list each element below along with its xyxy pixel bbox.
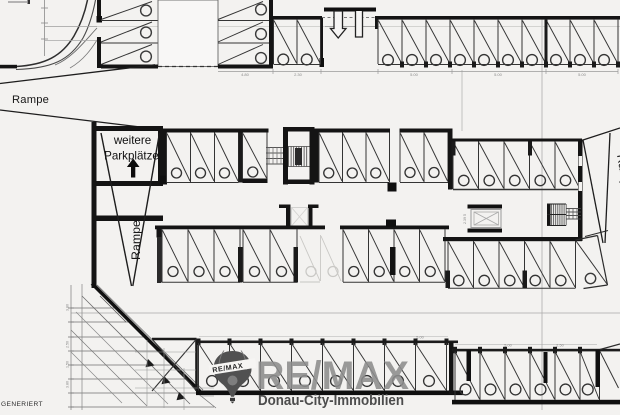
svg-text:2.30: 2.30 <box>294 72 303 77</box>
svg-text:3.80: 3.80 <box>66 304 70 311</box>
svg-text:4.80: 4.80 <box>241 72 250 77</box>
svg-text:GENERIERT: GENERIERT <box>1 401 43 408</box>
svg-text:2.39 5: 2.39 5 <box>463 214 467 224</box>
svg-text:Rampe: Rampe <box>129 220 143 260</box>
svg-text:2.50: 2.50 <box>556 344 563 348</box>
svg-text:5.00: 5.00 <box>494 72 503 77</box>
svg-text:1.50: 1.50 <box>66 361 70 368</box>
svg-text:5.00: 5.00 <box>410 72 419 77</box>
svg-text:3.80: 3.80 <box>66 381 70 388</box>
svg-text:5.00: 5.00 <box>416 336 423 340</box>
svg-text:Rampe: Rampe <box>12 94 49 106</box>
svg-text:2.50: 2.50 <box>66 341 70 348</box>
svg-text:Parkplätze: Parkplätze <box>104 150 159 163</box>
svg-text:5.00: 5.00 <box>578 72 587 77</box>
svg-text:5.00: 5.00 <box>504 344 511 348</box>
svg-text:Donau-City-Immobilien: Donau-City-Immobilien <box>258 392 404 409</box>
svg-text:weitere: weitere <box>113 134 151 147</box>
